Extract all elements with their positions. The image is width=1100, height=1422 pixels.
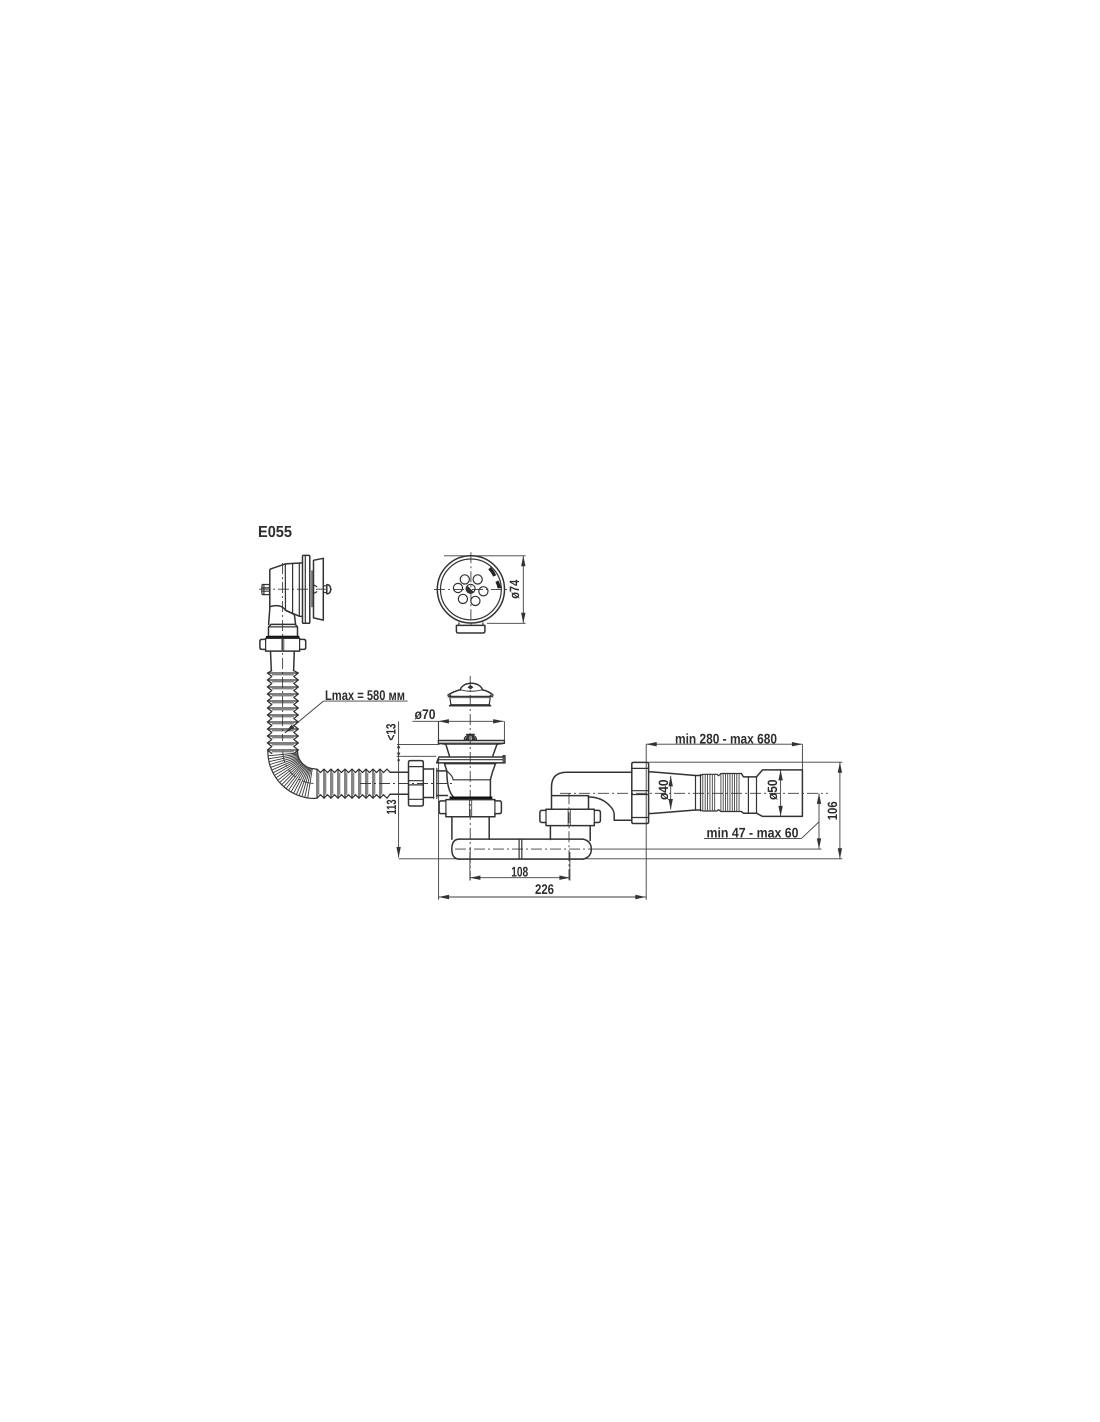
svg-text:106: 106 bbox=[825, 801, 840, 820]
svg-text:E055: E055 bbox=[258, 524, 292, 541]
svg-text:226: 226 bbox=[535, 881, 554, 897]
svg-text:ø50: ø50 bbox=[765, 780, 780, 801]
svg-text:ø74: ø74 bbox=[507, 579, 522, 598]
svg-text:ø40: ø40 bbox=[656, 780, 671, 801]
svg-text:<13: <13 bbox=[384, 723, 399, 740]
svg-text:Lmax = 580 мм: Lmax = 580 мм bbox=[325, 687, 405, 703]
svg-text:108: 108 bbox=[511, 864, 528, 880]
svg-text:113: 113 bbox=[384, 799, 399, 814]
svg-text:ø70: ø70 bbox=[415, 706, 436, 722]
